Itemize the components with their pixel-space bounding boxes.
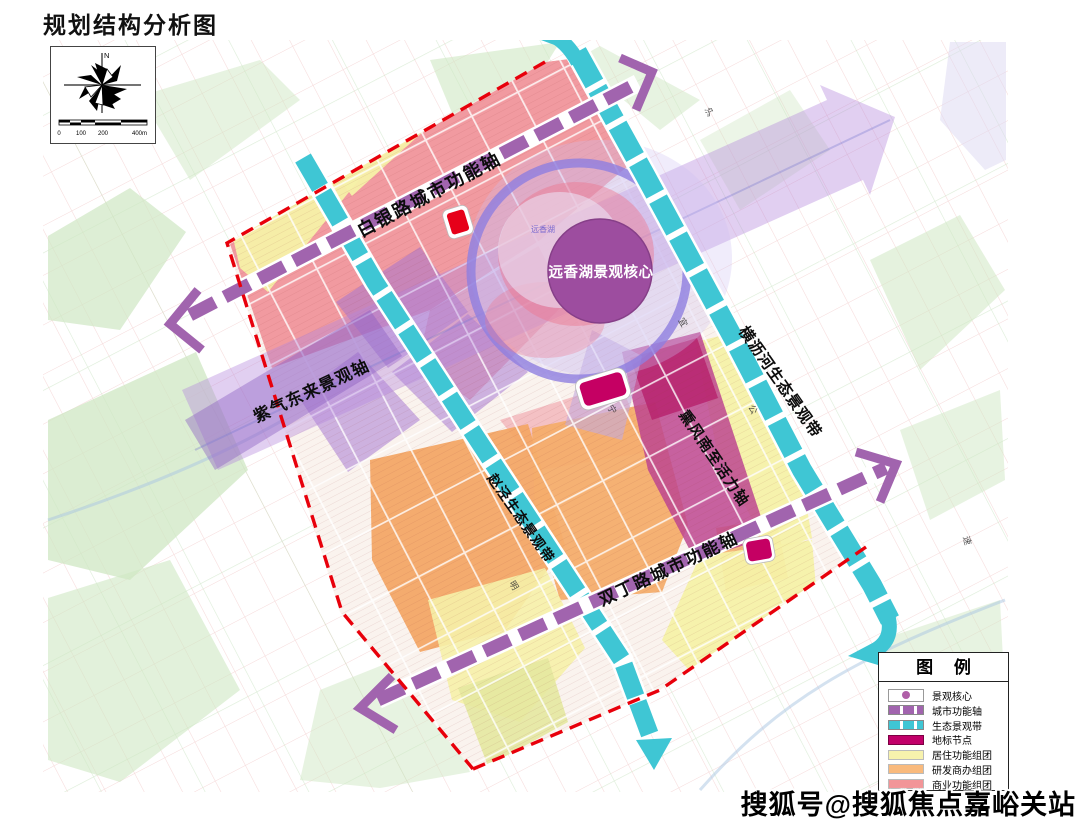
label-landscape-core: 远香湖景观核心 <box>549 263 654 281</box>
core-swatch-icon <box>888 689 924 702</box>
legend-box: 图 例 景观核心 城市功能轴 生态景观带 地标节点 居住功能组团 研发商办组团 … <box>878 652 1009 791</box>
legend-item-belt: 生态景观带 <box>888 718 1008 733</box>
belt-swatch-icon <box>888 720 924 730</box>
svg-text:100: 100 <box>76 131 87 137</box>
compass-box: N <box>50 46 156 144</box>
landmark-node <box>742 535 776 566</box>
residential-swatch-icon <box>888 750 924 760</box>
legend-item-axis: 城市功能轴 <box>888 703 1008 718</box>
legend-item-core: 景观核心 <box>888 688 1008 703</box>
watermark: 搜狐号@搜狐焦点嘉峪关站 <box>741 783 1076 822</box>
legend-item-rnd: 研发商办组团 <box>888 762 1008 777</box>
svg-text:0: 0 <box>57 131 61 137</box>
rnd-swatch-icon <box>888 764 924 774</box>
compass-rose-icon <box>64 53 141 113</box>
svg-text:200: 200 <box>98 131 109 137</box>
axis-swatch-icon <box>888 705 924 715</box>
north-label: N <box>104 51 109 60</box>
label-lake-name: 远香湖 <box>531 224 555 234</box>
page-title: 规划结构分析图 <box>43 6 218 40</box>
legend-title: 图 例 <box>879 653 1008 682</box>
node-swatch-icon <box>888 735 924 745</box>
svg-text:400m: 400m <box>132 131 147 137</box>
scale-bar: 0 100 200 400m <box>57 120 147 137</box>
legend-item-residential: 居住功能组团 <box>888 747 1008 762</box>
legend-item-node: 地标节点 <box>888 732 1008 747</box>
